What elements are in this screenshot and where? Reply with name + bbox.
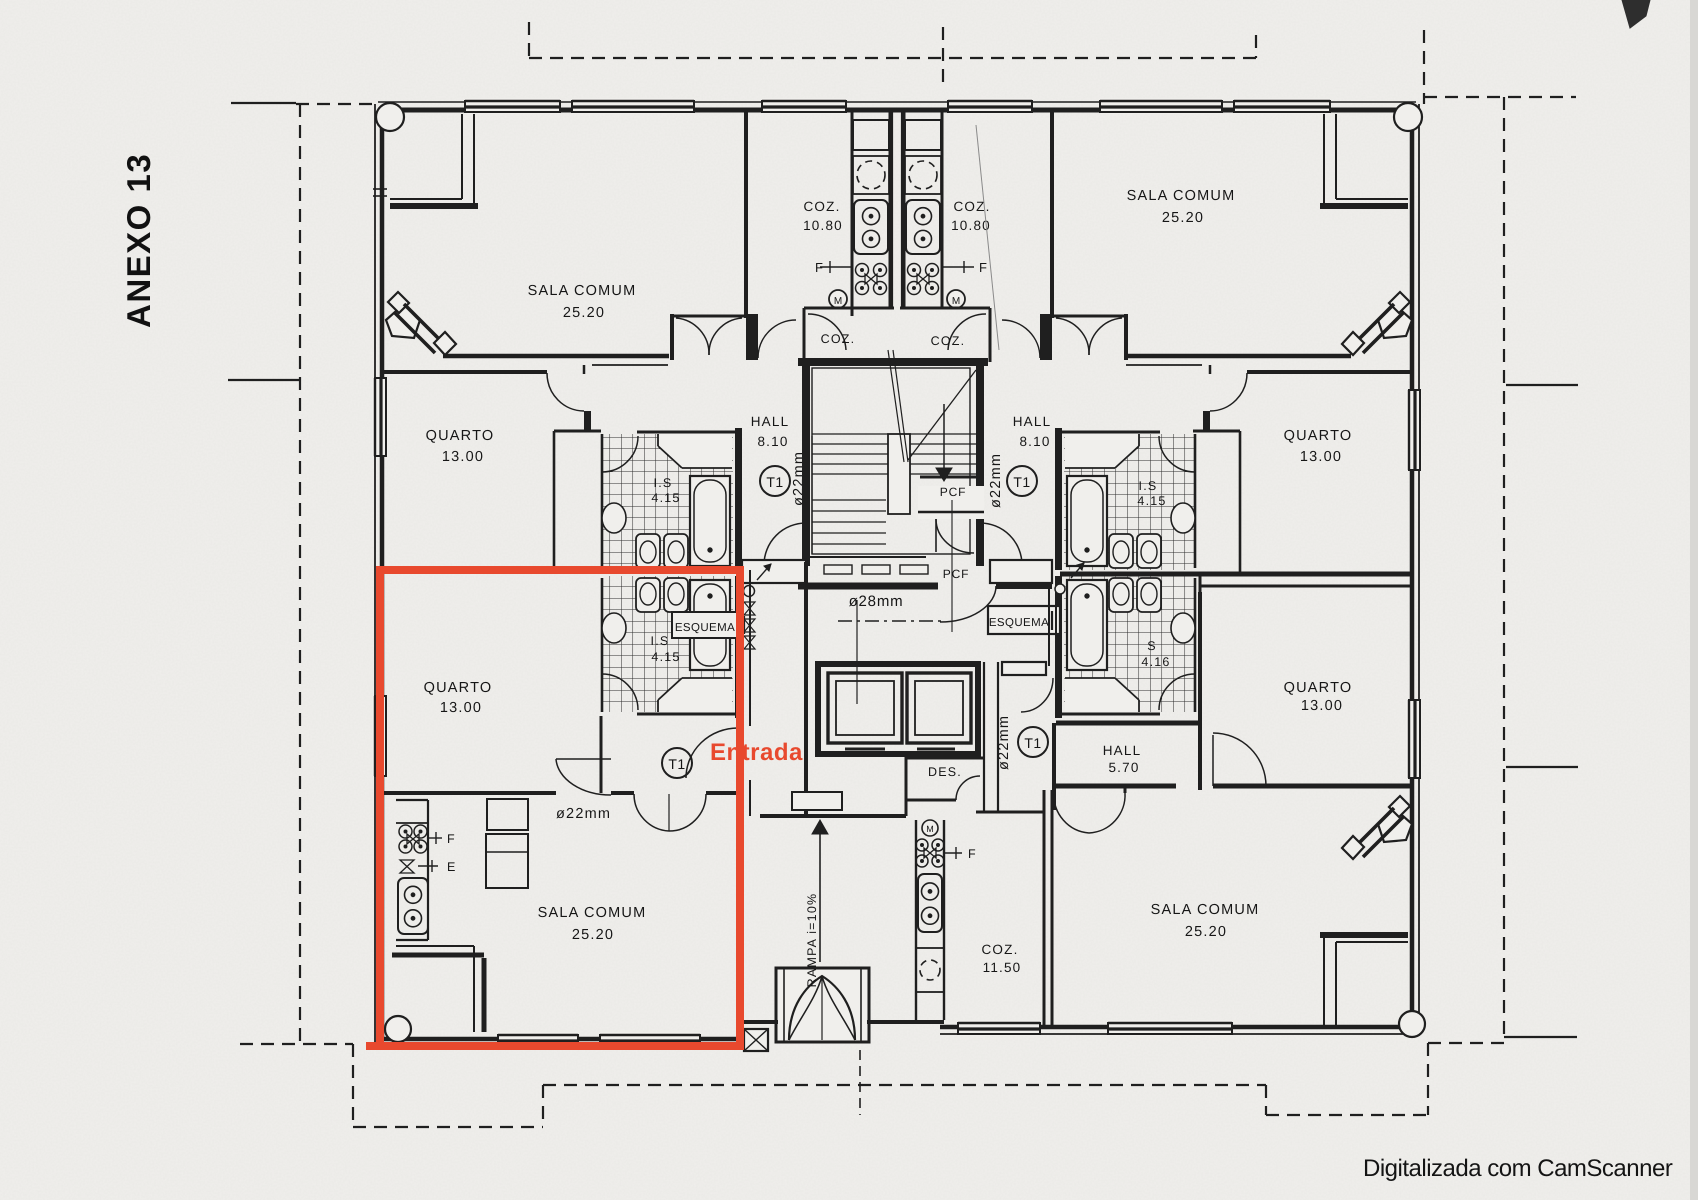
svg-text:T1: T1	[1024, 735, 1041, 751]
svg-text:PCF: PCF	[940, 485, 966, 499]
svg-text:T1: T1	[766, 474, 783, 490]
svg-text:10.80: 10.80	[951, 218, 991, 233]
svg-text:13.00: 13.00	[1300, 449, 1342, 465]
svg-text:5.70: 5.70	[1108, 760, 1139, 775]
svg-text:HALL: HALL	[1013, 414, 1052, 429]
svg-text:I.S: I.S	[651, 634, 670, 648]
svg-text:Digitalizada com CamScanner: Digitalizada com CamScanner	[1363, 1155, 1673, 1182]
svg-text:E: E	[447, 860, 455, 874]
svg-text:HALL: HALL	[1103, 743, 1142, 758]
svg-text:4.15: 4.15	[651, 650, 680, 664]
svg-text:DES.: DES.	[928, 765, 962, 779]
svg-text:QUARTO: QUARTO	[426, 428, 495, 444]
svg-text:SALA COMUM: SALA COMUM	[1127, 188, 1236, 204]
svg-text:F: F	[815, 260, 823, 275]
svg-text:M: M	[952, 296, 960, 307]
svg-text:F: F	[979, 260, 987, 275]
svg-text:I.S: I.S	[1139, 479, 1158, 493]
svg-text:SALA COMUM: SALA COMUM	[528, 283, 637, 299]
svg-text:M: M	[926, 824, 934, 834]
svg-text:QUARTO: QUARTO	[1284, 428, 1353, 444]
svg-text:ANEXO 13: ANEXO 13	[120, 153, 157, 328]
svg-text:25.20: 25.20	[572, 927, 614, 943]
svg-text:T1: T1	[1013, 474, 1030, 490]
svg-text:4.15: 4.15	[1137, 494, 1166, 508]
svg-text:13.00: 13.00	[1301, 698, 1343, 714]
svg-text:4.15: 4.15	[651, 491, 680, 505]
svg-text:RAMPA i=10%: RAMPA i=10%	[805, 893, 819, 988]
svg-text:HALL: HALL	[751, 414, 790, 429]
svg-text:T1: T1	[668, 756, 685, 772]
svg-text:ø22mm: ø22mm	[988, 453, 1004, 508]
svg-text:Entrada: Entrada	[710, 739, 803, 766]
svg-text:25.20: 25.20	[1185, 924, 1227, 940]
svg-text:11.50: 11.50	[983, 960, 1022, 975]
svg-text:13.00: 13.00	[442, 449, 484, 465]
svg-text:I.S: I.S	[654, 476, 673, 490]
svg-text:COZ.: COZ.	[803, 199, 840, 214]
svg-text:QUARTO: QUARTO	[424, 680, 493, 696]
svg-text:QUARTO: QUARTO	[1284, 680, 1353, 696]
svg-text:ø22mm: ø22mm	[556, 806, 611, 822]
svg-text:ESQUEMA: ESQUEMA	[989, 617, 1049, 629]
svg-text:COZ.: COZ.	[981, 942, 1018, 957]
svg-text:13.00: 13.00	[440, 700, 482, 716]
svg-text:COZ.: COZ.	[931, 334, 966, 348]
svg-text:COZ.: COZ.	[821, 332, 856, 346]
svg-text:M: M	[834, 296, 842, 307]
svg-text:ø22mm: ø22mm	[996, 715, 1012, 770]
svg-text:25.20: 25.20	[1162, 210, 1204, 226]
svg-text:SALA COMUM: SALA COMUM	[1151, 902, 1260, 918]
svg-text:SALA COMUM: SALA COMUM	[538, 905, 647, 921]
svg-text:PCF: PCF	[943, 567, 969, 581]
svg-text:8.10: 8.10	[757, 434, 788, 449]
svg-text:ESQUEMA: ESQUEMA	[675, 622, 735, 634]
svg-text:4.16: 4.16	[1141, 655, 1170, 669]
svg-text:8.10: 8.10	[1019, 434, 1050, 449]
svg-text:F: F	[968, 847, 976, 861]
svg-text:S: S	[1147, 639, 1157, 653]
svg-text:25.20: 25.20	[563, 305, 605, 321]
svg-text:10.80: 10.80	[803, 218, 843, 233]
svg-text:F: F	[447, 832, 455, 846]
